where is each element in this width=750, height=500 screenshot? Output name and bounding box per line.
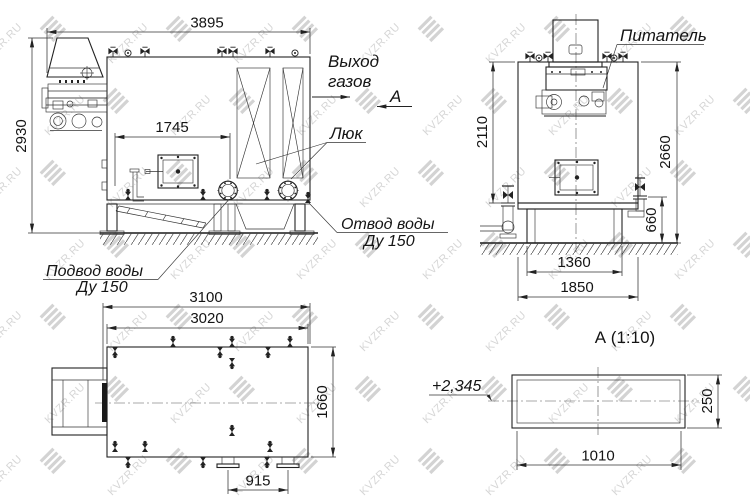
watermark-logo-icon xyxy=(40,448,66,474)
watermark-logo-icon xyxy=(733,88,750,114)
svg-text:915: 915 xyxy=(245,473,270,490)
watermark-logo-icon xyxy=(607,376,633,402)
watermark-logo-icon xyxy=(418,160,444,186)
front-base xyxy=(100,204,314,235)
watermark-logo-icon xyxy=(733,232,750,258)
plan-valves xyxy=(112,336,293,468)
watermark-text: KVZR.RU xyxy=(673,93,718,138)
svg-text:3020: 3020 xyxy=(190,310,223,327)
watermark-text: KVZR.RU xyxy=(106,21,151,66)
watermark-logo-icon xyxy=(418,304,444,330)
watermark-text: KVZR.RU xyxy=(106,165,151,210)
drawing-sheet: KVZR.RUKVZR.RUKVZR.RUKVZR.RUKVZR.RUKVZR.… xyxy=(0,0,750,500)
svg-text:1010: 1010 xyxy=(581,448,614,465)
watermark-logo-icon xyxy=(733,376,750,402)
dim-detail-length: 1010 xyxy=(517,431,681,470)
watermark-text: KVZR.RU xyxy=(0,165,25,210)
watermark-text: KVZR.RU xyxy=(547,381,592,426)
watermark-logo-icon xyxy=(229,88,255,114)
boiler-technical-drawing: KVZR.RUKVZR.RUKVZR.RUKVZR.RUKVZR.RUKVZR.… xyxy=(0,0,750,500)
svg-text:+2,345: +2,345 xyxy=(432,378,481,395)
watermark-text: KVZR.RU xyxy=(358,309,403,354)
watermark-logo-icon xyxy=(292,304,318,330)
side-door xyxy=(549,160,598,195)
watermark-text: KVZR.RU xyxy=(0,309,25,354)
lifting-eye-icon xyxy=(292,50,298,56)
watermark-text: KVZR.RU xyxy=(169,381,214,426)
watermark-logo-icon xyxy=(292,16,318,42)
watermark-text: KVZR.RU xyxy=(610,453,655,498)
gas-duct-hatch-panels xyxy=(237,68,303,178)
svg-text:Выход: Выход xyxy=(328,52,379,71)
front-top-valves xyxy=(108,47,298,57)
dim-front-width-text: 3895 xyxy=(190,15,223,32)
ladder xyxy=(116,206,206,228)
svg-text:Люк: Люк xyxy=(329,124,363,143)
watermark-text: KVZR.RU xyxy=(673,237,718,282)
svg-text:Питатель: Питатель xyxy=(620,26,707,45)
detail-title: А (1:10) xyxy=(595,328,655,347)
svg-text:А: А xyxy=(389,87,401,106)
watermark-logo-icon xyxy=(40,304,66,330)
watermark-logo-icon xyxy=(670,304,696,330)
dim-front-height-text: 2930 xyxy=(13,119,30,152)
svg-text:Ду 150: Ду 150 xyxy=(362,233,415,250)
watermark-logo-icon xyxy=(418,16,444,42)
svg-text:2110: 2110 xyxy=(474,116,491,148)
watermark-text: KVZR.RU xyxy=(0,453,25,498)
watermark-text: KVZR.RU xyxy=(484,21,529,66)
svg-text:250: 250 xyxy=(699,388,716,413)
dim-plan-length-overall: 3100 xyxy=(103,289,310,380)
water-outlet-flange xyxy=(277,180,299,202)
svg-text:1850: 1850 xyxy=(560,279,593,296)
watermark-logo-icon xyxy=(607,88,633,114)
svg-text:Подвод воды: Подвод воды xyxy=(46,263,143,280)
watermark-logo-icon xyxy=(166,448,192,474)
watermark-logo-icon xyxy=(670,448,696,474)
watermark-text: KVZR.RU xyxy=(43,381,88,426)
watermark-logo-icon xyxy=(292,448,318,474)
svg-text:Ду 150: Ду 150 xyxy=(75,279,128,296)
watermark-logo-icon xyxy=(544,160,570,186)
watermark-logo-icon xyxy=(418,448,444,474)
watermark-text: KVZR.RU xyxy=(232,21,277,66)
watermark-text: KVZR.RU xyxy=(484,309,529,354)
watermark-logo-icon xyxy=(166,16,192,42)
watermark-text: KVZR.RU xyxy=(43,93,88,138)
watermark-logo-icon xyxy=(40,160,66,186)
watermark-logo-icon xyxy=(166,304,192,330)
watermark-logo-icon xyxy=(544,448,570,474)
view-a-marker: А xyxy=(377,87,412,107)
side-view: Питатель 2110 2660 660 1360 xyxy=(474,14,707,301)
svg-text:газов: газов xyxy=(328,72,371,91)
watermark-logo-icon xyxy=(229,376,255,402)
watermark-logo-icon xyxy=(355,88,381,114)
svg-text:1360: 1360 xyxy=(557,254,590,271)
watermark-logo-icon xyxy=(292,160,318,186)
svg-text:3100: 3100 xyxy=(189,289,222,306)
watermark-text: KVZR.RU xyxy=(358,453,403,498)
watermark-text: KVZR.RU xyxy=(421,237,466,282)
watermark-text: KVZR.RU xyxy=(358,165,403,210)
watermark-logo-icon xyxy=(481,376,507,402)
watermark-logo-icon xyxy=(544,304,570,330)
lifting-eye-icon xyxy=(536,55,542,61)
dim-side-base-height: 660 xyxy=(643,197,667,243)
svg-text:660: 660 xyxy=(643,207,660,232)
watermark-text: KVZR.RU xyxy=(421,93,466,138)
watermark-text: KVZR.RU xyxy=(484,453,529,498)
watermark-logo-icon xyxy=(481,88,507,114)
ground-front xyxy=(28,233,318,245)
watermark-text: KVZR.RU xyxy=(0,21,25,66)
svg-text:1660: 1660 xyxy=(314,385,331,418)
watermark-logo-icon xyxy=(355,376,381,402)
svg-text:2660: 2660 xyxy=(657,135,674,168)
label-gas-outlet: Выход газов xyxy=(312,52,379,97)
dim-plan-width: 1660 xyxy=(311,347,336,457)
svg-text:Отвод воды: Отвод воды xyxy=(341,216,435,233)
side-base xyxy=(518,203,638,243)
dim-front-door-span-text: 1745 xyxy=(155,119,188,136)
